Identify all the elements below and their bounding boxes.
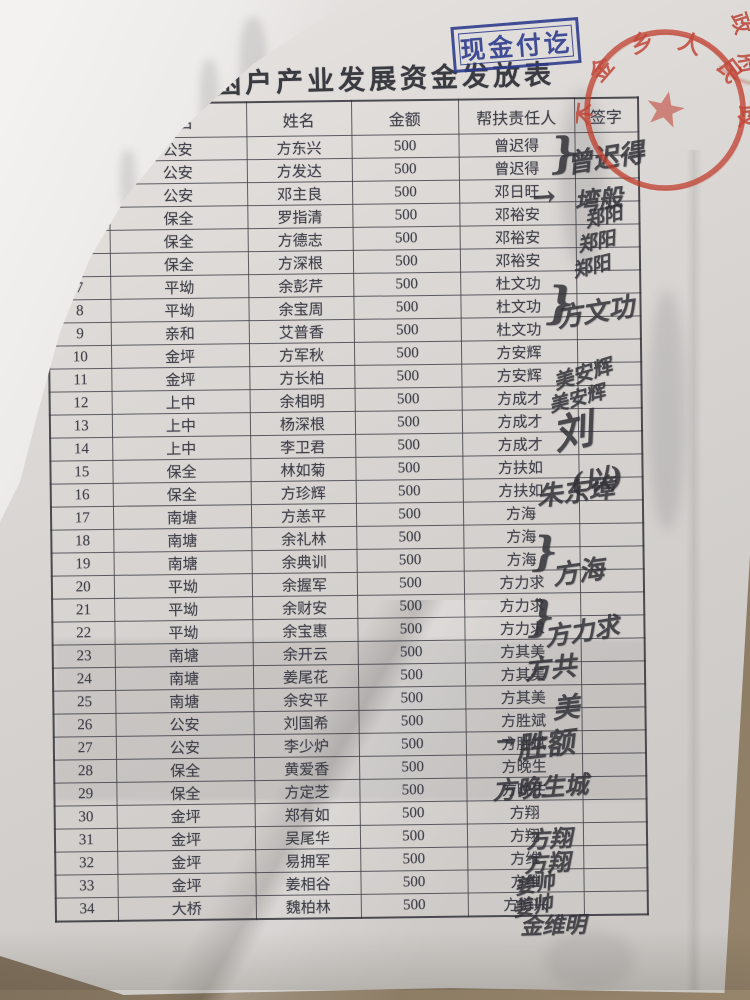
name-cell: 余安平 bbox=[253, 687, 358, 711]
amount-cell: 500 bbox=[353, 249, 460, 273]
village-cell: 金坪 bbox=[111, 367, 249, 392]
table-wrapper: 号村名姓名金额帮扶责任人签字1公安方东兴500曾迟得2公安方发达500曾迟得3公… bbox=[45, 96, 649, 922]
helper-cell: 方扶如 bbox=[462, 455, 578, 479]
row-number-cell: 12 bbox=[50, 391, 112, 415]
signature-cell bbox=[583, 868, 647, 892]
signature-cell bbox=[579, 546, 643, 570]
row-number-cell: 33 bbox=[55, 874, 117, 898]
name-cell: 方定芝 bbox=[254, 779, 359, 803]
amount-cell: 500 bbox=[356, 548, 463, 572]
name-header: 姓名 bbox=[246, 101, 351, 137]
row-number-cell: 30 bbox=[55, 805, 117, 829]
helper-cell: 杜文功 bbox=[460, 294, 576, 318]
village-cell: 平坳 bbox=[110, 275, 248, 300]
village-cell: 公安 bbox=[116, 735, 254, 760]
village-cell: 金坪 bbox=[117, 827, 255, 852]
village-cell: 上中 bbox=[112, 413, 250, 438]
signature-cell bbox=[576, 293, 640, 317]
village-cell: 金坪 bbox=[111, 344, 249, 369]
helper-cell: 方成才 bbox=[462, 386, 578, 410]
amount-cell: 500 bbox=[357, 571, 464, 595]
signature-cell bbox=[582, 730, 646, 754]
amount-cell: 500 bbox=[352, 203, 459, 227]
amount-header: 金额 bbox=[351, 100, 458, 136]
amount-cell: 500 bbox=[356, 525, 463, 549]
signature-cell bbox=[579, 500, 643, 524]
row-number-cell: 18 bbox=[51, 529, 113, 553]
photographed-document: 现金付讫 木金乡贫困户产业发展资金发放表 号村名姓名金额帮扶责任人签字1公安方东… bbox=[0, 0, 750, 1000]
name-cell: 姜尾花 bbox=[253, 664, 358, 688]
row-number-cell: 16 bbox=[51, 483, 113, 507]
name-cell: 余财安 bbox=[252, 595, 357, 619]
row-number-cell: 14 bbox=[50, 437, 112, 461]
row-number-cell: 10 bbox=[49, 345, 111, 369]
helper-cell: 方安辉 bbox=[461, 340, 577, 364]
village-cell: 平坳 bbox=[114, 574, 252, 599]
signature-cell bbox=[576, 270, 640, 294]
helper-cell: 方成才 bbox=[462, 409, 578, 433]
helper-cell: 方维 bbox=[467, 869, 583, 893]
helper-cell: 邓日旺 bbox=[459, 179, 575, 203]
helper-cell: 方力求 bbox=[464, 570, 580, 594]
helper-cell: 方晚生 bbox=[466, 754, 582, 778]
signature-cell bbox=[579, 477, 643, 501]
name-cell: 余开云 bbox=[253, 641, 358, 665]
helper-cell: 方成才 bbox=[462, 432, 578, 456]
helper-cell: 方海 bbox=[463, 524, 579, 548]
helper-cell: 方晚生 bbox=[466, 777, 582, 801]
signature-cell bbox=[577, 316, 641, 340]
village-cell: 亲和 bbox=[111, 321, 249, 346]
village-cell: 平坳 bbox=[114, 597, 252, 622]
signature-cell bbox=[583, 799, 647, 823]
row-number-cell: 20 bbox=[52, 575, 114, 599]
amount-cell: 500 bbox=[359, 778, 466, 802]
village-cell: 金坪 bbox=[117, 873, 255, 898]
government-seal-stamp: 木金乡人民政府 bbox=[576, 10, 750, 215]
amount-cell: 500 bbox=[356, 479, 463, 503]
name-cell: 余典训 bbox=[251, 549, 356, 573]
village-cell: 南塘 bbox=[113, 505, 251, 530]
row-number-cell: 15 bbox=[50, 460, 112, 484]
name-cell: 李卫君 bbox=[250, 434, 355, 458]
row-number-cell: 23 bbox=[53, 644, 115, 668]
village-cell: 大桥 bbox=[118, 896, 256, 921]
row-number-cell: 25 bbox=[53, 690, 115, 714]
amount-cell: 500 bbox=[353, 295, 460, 319]
helper-cell: 方力求 bbox=[464, 616, 580, 640]
amount-cell: 500 bbox=[358, 663, 465, 687]
signature-cell bbox=[581, 707, 645, 731]
helper-cell: 方其美 bbox=[465, 662, 581, 686]
helper-cell: 方扶如 bbox=[463, 478, 579, 502]
signature-cell bbox=[580, 615, 644, 639]
helper-cell: 方胜斌 bbox=[466, 731, 582, 755]
name-cell: 李少炉 bbox=[254, 733, 359, 757]
amount-cell: 500 bbox=[360, 801, 467, 825]
row-number-cell: 24 bbox=[53, 667, 115, 691]
signature-cell bbox=[581, 638, 645, 662]
signature-cell bbox=[578, 385, 642, 409]
village-cell: 保全 bbox=[116, 758, 254, 783]
name-cell: 郑有如 bbox=[255, 802, 360, 826]
village-cell: 保全 bbox=[109, 206, 247, 231]
name-cell: 吴尾华 bbox=[255, 825, 360, 849]
village-cell: 金坪 bbox=[117, 804, 255, 829]
amount-cell: 500 bbox=[352, 157, 459, 181]
name-cell: 刘国希 bbox=[253, 710, 358, 734]
name-cell: 方深根 bbox=[248, 250, 353, 274]
signature-cell bbox=[581, 684, 645, 708]
row-number-cell: 21 bbox=[52, 598, 114, 622]
amount-cell: 500 bbox=[360, 870, 467, 894]
amount-cell: 500 bbox=[359, 732, 466, 756]
amount-cell: 500 bbox=[355, 433, 462, 457]
amount-cell: 500 bbox=[359, 755, 466, 779]
signature-cell bbox=[580, 569, 644, 593]
helper-cell: 方翔 bbox=[467, 800, 583, 824]
signature-cell bbox=[578, 454, 642, 478]
row-number-cell: 32 bbox=[55, 851, 117, 875]
signature-cell bbox=[582, 776, 646, 800]
amount-cell: 500 bbox=[361, 893, 468, 918]
signature-cell bbox=[576, 224, 640, 248]
village-cell: 南塘 bbox=[114, 551, 252, 576]
name-cell: 方珍辉 bbox=[251, 480, 356, 504]
name-cell: 余彭芹 bbox=[248, 273, 353, 297]
row-number-cell: 11 bbox=[49, 368, 111, 392]
signature-cell bbox=[580, 592, 644, 616]
name-cell: 方德志 bbox=[248, 227, 353, 251]
name-cell: 易拥军 bbox=[255, 848, 360, 872]
signature-cell bbox=[582, 753, 646, 777]
name-cell: 余礼林 bbox=[251, 526, 356, 550]
signature-cell bbox=[576, 247, 640, 271]
signature-cell bbox=[581, 661, 645, 685]
village-cell: 保全 bbox=[110, 252, 248, 277]
row-number-cell: 22 bbox=[52, 621, 114, 645]
row-number-cell: 19 bbox=[52, 552, 114, 576]
amount-cell: 500 bbox=[356, 502, 463, 526]
name-cell: 杨深根 bbox=[250, 411, 355, 435]
amount-cell: 500 bbox=[357, 594, 464, 618]
name-cell: 艾普香 bbox=[249, 319, 354, 343]
village-cell: 平坳 bbox=[110, 298, 248, 323]
row-number-cell: 27 bbox=[54, 736, 116, 760]
amount-cell: 500 bbox=[355, 410, 462, 434]
helper-cell: 方翔 bbox=[467, 823, 583, 847]
village-cell: 公安 bbox=[115, 712, 253, 737]
amount-cell: 500 bbox=[355, 387, 462, 411]
amount-cell: 500 bbox=[358, 640, 465, 664]
signature-cell bbox=[583, 822, 647, 846]
amount-cell: 500 bbox=[354, 318, 461, 342]
name-cell: 方发达 bbox=[247, 158, 352, 182]
name-cell: 方东兴 bbox=[246, 135, 351, 159]
helper-cell: 方海 bbox=[463, 501, 579, 525]
amount-cell: 500 bbox=[354, 364, 461, 388]
amount-cell: 500 bbox=[358, 686, 465, 710]
signature-cell bbox=[578, 431, 642, 455]
helper-cell: 方衍兴 bbox=[468, 892, 584, 917]
village-cell: 保全 bbox=[116, 781, 254, 806]
village-cell: 保全 bbox=[113, 482, 251, 507]
signature-cell bbox=[584, 891, 648, 915]
amount-cell: 500 bbox=[352, 180, 459, 204]
name-cell: 余握军 bbox=[252, 572, 357, 596]
name-cell: 方长柏 bbox=[249, 365, 354, 389]
row-number-cell: 31 bbox=[55, 828, 117, 852]
amount-cell: 500 bbox=[355, 456, 462, 480]
name-cell: 余宝惠 bbox=[252, 618, 357, 642]
signature-cell bbox=[577, 339, 641, 363]
village-cell: 上中 bbox=[112, 390, 250, 415]
helper-cell: 方其美 bbox=[465, 685, 581, 709]
helper-cell: 曾迟得 bbox=[458, 133, 574, 157]
signature-cell bbox=[578, 408, 642, 432]
helper-cell: 曾迟得 bbox=[459, 156, 575, 180]
helper-cell: 杜文功 bbox=[460, 271, 576, 295]
village-cell: 南塘 bbox=[115, 643, 253, 668]
name-cell: 姜相谷 bbox=[255, 871, 360, 895]
name-cell: 余宝周 bbox=[248, 296, 353, 320]
village-cell: 平坳 bbox=[114, 620, 252, 645]
amount-cell: 500 bbox=[360, 824, 467, 848]
helper-cell: 方胜斌 bbox=[465, 708, 581, 732]
amount-cell: 500 bbox=[357, 617, 464, 641]
signature-cell bbox=[577, 362, 641, 386]
helper-header: 帮扶责任人 bbox=[458, 98, 574, 134]
row-number-cell: 26 bbox=[53, 713, 115, 737]
helper-cell: 邓裕安 bbox=[459, 202, 575, 226]
signature-cell bbox=[583, 845, 647, 869]
amount-cell: 500 bbox=[353, 272, 460, 296]
helper-cell: 方安辉 bbox=[461, 363, 577, 387]
helper-cell: 方海 bbox=[463, 547, 579, 571]
row-number-cell: 29 bbox=[54, 782, 116, 806]
name-cell: 方军秋 bbox=[249, 342, 354, 366]
village-cell: 保全 bbox=[110, 229, 248, 254]
helper-cell: 方其美 bbox=[465, 639, 581, 663]
row-number-cell: 28 bbox=[54, 759, 116, 783]
name-cell: 林如菊 bbox=[250, 457, 355, 481]
amount-cell: 500 bbox=[351, 134, 458, 158]
helper-cell: 方力求 bbox=[464, 593, 580, 617]
helper-cell: 杜文功 bbox=[461, 317, 577, 341]
name-cell: 黄爱香 bbox=[254, 756, 359, 780]
row-number-cell: 17 bbox=[51, 506, 113, 530]
village-cell: 上中 bbox=[112, 436, 250, 461]
name-cell: 方恙平 bbox=[251, 503, 356, 527]
village-cell: 金坪 bbox=[117, 850, 255, 875]
village-cell: 南塘 bbox=[115, 689, 253, 714]
helper-cell: 邓裕安 bbox=[460, 225, 576, 249]
helper-cell: 方维 bbox=[467, 846, 583, 870]
fund-distribution-table: 号村名姓名金额帮扶责任人签字1公安方东兴500曾迟得2公安方发达500曾迟得3公… bbox=[45, 96, 649, 922]
amount-cell: 500 bbox=[354, 341, 461, 365]
name-cell: 魏柏林 bbox=[256, 894, 361, 919]
seal-star-icon bbox=[643, 88, 687, 129]
amount-cell: 500 bbox=[353, 226, 460, 250]
amount-cell: 500 bbox=[358, 709, 465, 733]
corner-seal-char-2: 府 bbox=[732, 50, 750, 76]
cash-paid-stamp-text: 现金付讫 bbox=[459, 23, 573, 68]
row-number-cell: 13 bbox=[50, 414, 112, 438]
name-cell: 余相明 bbox=[250, 388, 355, 412]
amount-cell: 500 bbox=[360, 847, 467, 871]
village-cell: 南塘 bbox=[115, 666, 253, 691]
name-cell: 罗指清 bbox=[247, 204, 352, 228]
village-cell: 保全 bbox=[112, 459, 250, 484]
name-cell: 邓主良 bbox=[247, 181, 352, 205]
row-number-cell: 34 bbox=[56, 897, 118, 921]
village-cell: 南塘 bbox=[113, 528, 251, 553]
signature-cell bbox=[579, 523, 643, 547]
helper-cell: 邓裕安 bbox=[460, 248, 576, 272]
